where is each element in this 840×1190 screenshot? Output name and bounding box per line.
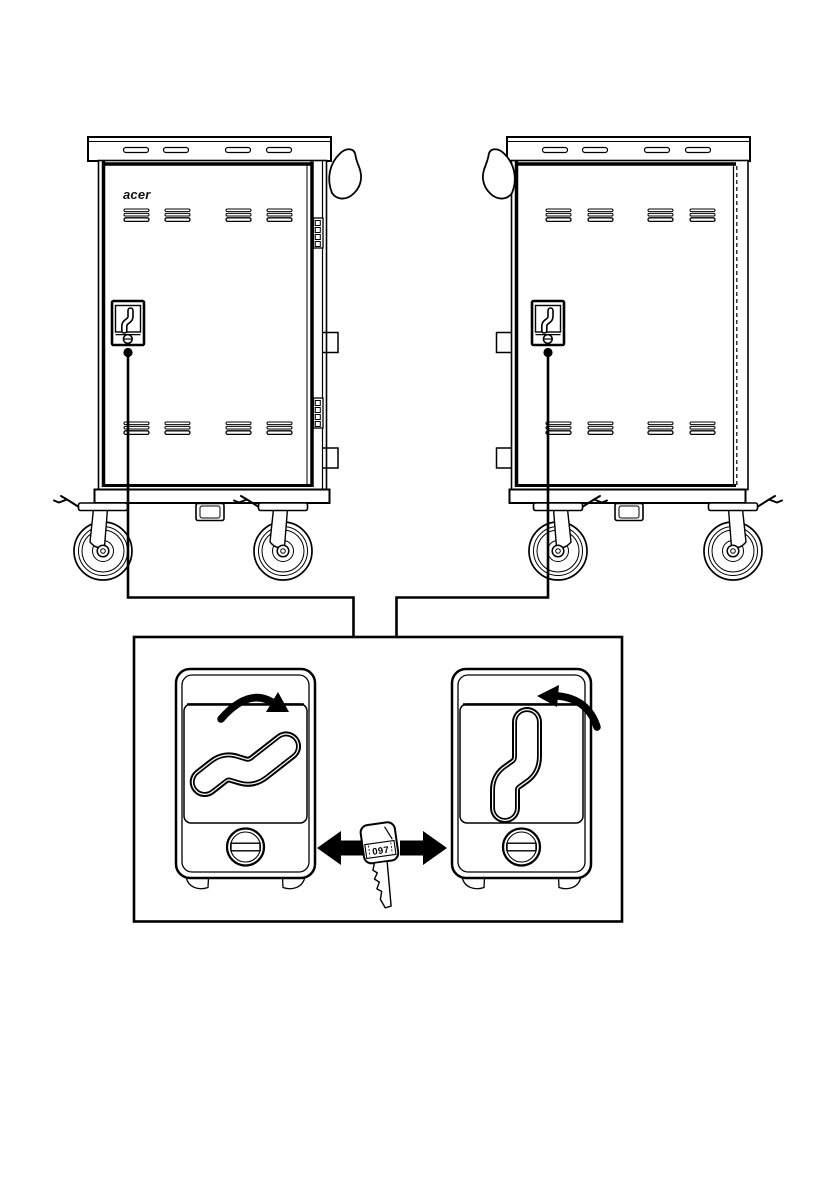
caster-wheel [54, 496, 132, 580]
door-vent [165, 422, 190, 434]
base-connector [196, 504, 224, 521]
right-cart [483, 137, 782, 580]
door-vent [588, 422, 613, 434]
door-vent [226, 422, 251, 434]
door-vent [690, 209, 715, 221]
base-band [510, 490, 746, 504]
caster-wheel [529, 496, 607, 580]
door-vent [690, 422, 715, 434]
lock-detail-unlocked [176, 669, 315, 889]
door-hinge [314, 218, 324, 248]
door-vent [124, 209, 149, 221]
base-band [95, 490, 330, 504]
caster-wheel [234, 496, 312, 580]
door-vent [648, 422, 673, 434]
caster-wheel [704, 496, 782, 580]
door-vent [546, 209, 571, 221]
manual-page: acer [0, 0, 840, 1190]
door-hinge [314, 398, 324, 428]
door-lock [532, 301, 564, 345]
door-vent [267, 422, 292, 434]
side-bracket [497, 448, 512, 468]
side-bracket [497, 333, 512, 353]
base-connector [615, 504, 643, 521]
key-label: 097 [372, 845, 390, 858]
cart-top-rail [88, 137, 331, 161]
cart-top-rail [507, 137, 750, 161]
push-handle-icon [329, 149, 361, 198]
cart-lock-illustration: acer [0, 0, 840, 1190]
lock-detail-locked [452, 669, 597, 889]
door-vent [226, 209, 251, 221]
left-cart: acer [54, 137, 361, 580]
detail-callout-box: 097 [134, 637, 622, 922]
door-vent [588, 209, 613, 221]
door-vent [546, 422, 571, 434]
door-vent [267, 209, 292, 221]
door-vent [165, 209, 190, 221]
door-lock [112, 301, 144, 345]
door-vent [648, 209, 673, 221]
acer-logo: acer [123, 187, 151, 202]
